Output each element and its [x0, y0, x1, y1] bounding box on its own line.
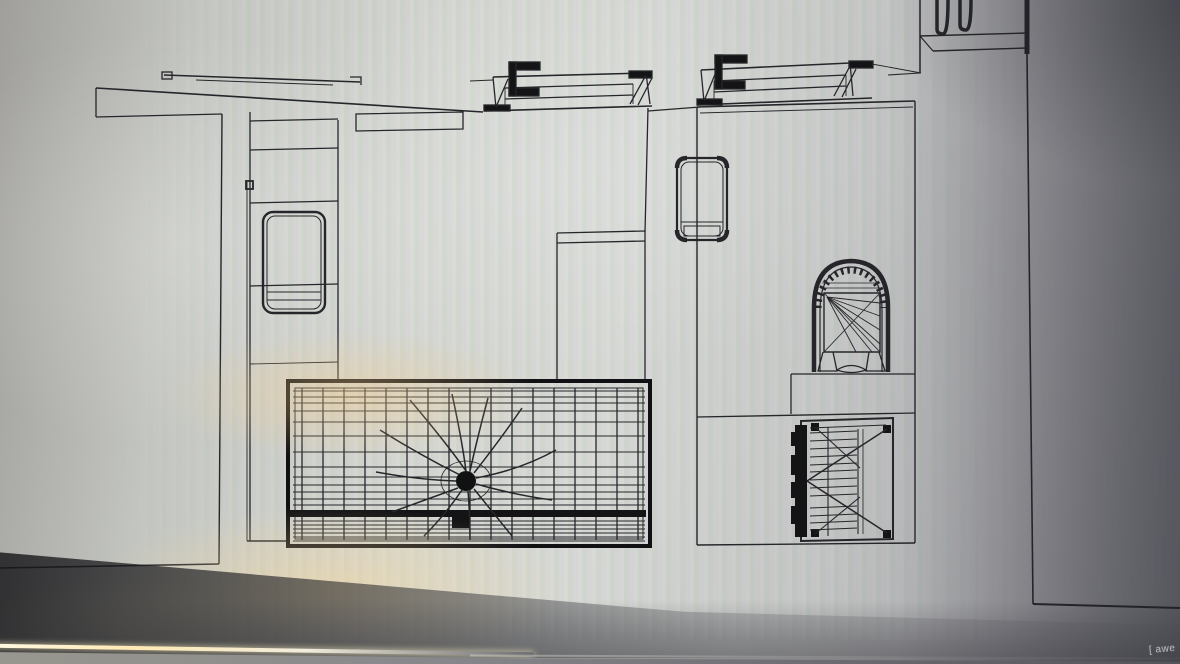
- net-center-node: [456, 471, 476, 491]
- door-jamb-bracket-a: [509, 62, 540, 96]
- window-symbol-a: [470, 62, 652, 111]
- net-anchor-tab: [452, 517, 470, 528]
- window-symbol-b: [697, 55, 921, 105]
- arch-fan-lines: [824, 293, 880, 352]
- door-jamb-bracket-b: [715, 55, 747, 89]
- bench-slats: [810, 431, 857, 530]
- net-grid: [288, 381, 650, 546]
- cad-floorplan-drawing: [0, 0, 1180, 664]
- cabinet-door: [263, 212, 325, 313]
- slatted-bench: [791, 418, 893, 541]
- center-island: [557, 108, 648, 382]
- platform: [697, 374, 915, 417]
- right-partition: [1027, 54, 1180, 608]
- corner-window-symbol: [888, 0, 1027, 75]
- net-frame-bar: [290, 510, 646, 517]
- photo-of-screen: [ awe: [0, 0, 1180, 664]
- counter: [356, 112, 463, 131]
- watermark-text: [ awe: [1149, 643, 1176, 656]
- arched-fixture: [814, 261, 888, 373]
- door-track: [162, 72, 361, 85]
- armchair: [677, 158, 727, 240]
- left-room: [0, 114, 222, 568]
